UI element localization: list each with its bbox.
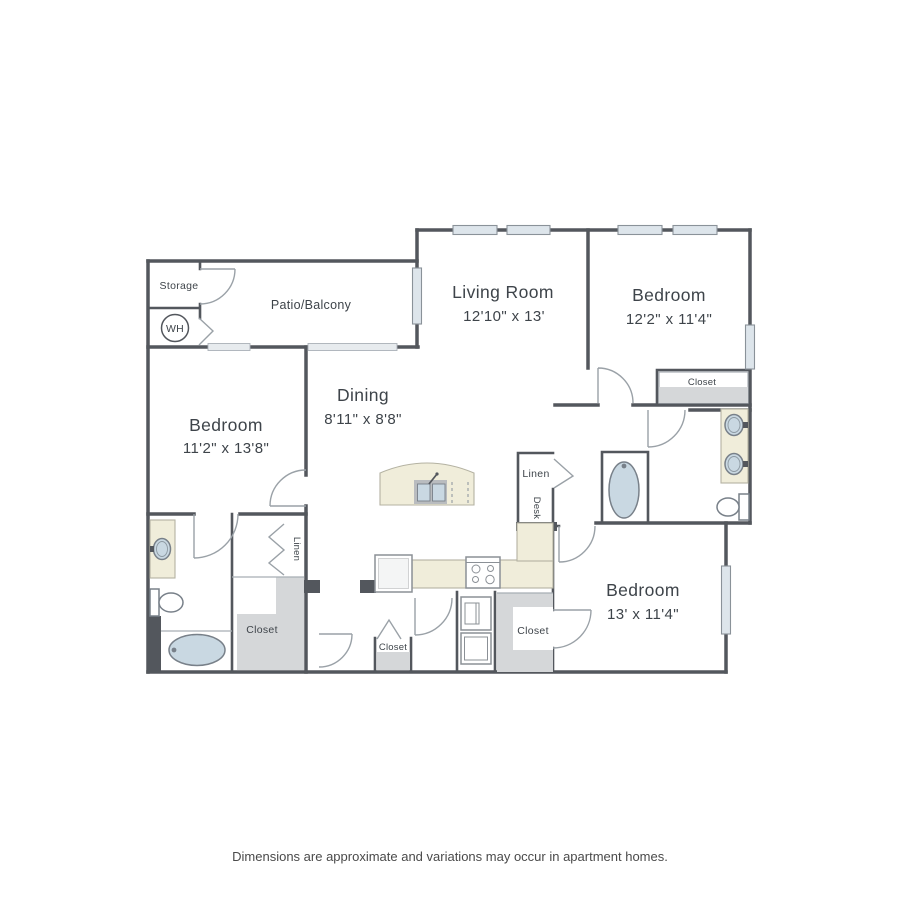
wall-stub <box>148 616 161 672</box>
living-room-label: Living Room <box>452 282 554 302</box>
floor-plan: WH Storage Patio/Balcony Living Room 12'… <box>0 0 900 900</box>
window <box>507 226 550 235</box>
bedroom-left-dims: 11'2" x 13'8" <box>183 440 269 457</box>
bedroom-left-label: Bedroom <box>189 415 263 435</box>
linen-label: Linen <box>291 537 302 561</box>
water-heater-label: WH <box>166 323 184 335</box>
kitchen-counter <box>517 523 553 561</box>
closet-floor <box>659 387 748 403</box>
disclaimer-text: Dimensions are approximate and variation… <box>232 849 668 864</box>
closet-label: Closet <box>517 625 549 637</box>
patio-door-sill <box>308 344 397 351</box>
window <box>673 226 717 235</box>
patio-label: Patio/Balcony <box>271 298 352 312</box>
bathtub <box>609 462 639 518</box>
window <box>413 268 422 324</box>
door-swing <box>648 410 685 447</box>
floor-plan-page: WH Storage Patio/Balcony Living Room 12'… <box>0 0 900 900</box>
window <box>746 325 755 369</box>
door-swing <box>319 634 352 667</box>
closet-floor <box>377 652 410 670</box>
living-room-dims: 12'10" x 13' <box>463 308 545 325</box>
bathroom-master <box>609 409 749 520</box>
door-bifold <box>269 524 284 575</box>
dining-label: Dining <box>337 385 389 405</box>
toilet <box>150 589 183 616</box>
window <box>618 226 662 235</box>
closet-label: Closet <box>246 624 278 636</box>
window <box>722 566 731 634</box>
stove <box>466 557 500 588</box>
door-swing <box>598 368 633 403</box>
linen-label: Linen <box>522 468 549 480</box>
dining-dims: 8'11" x 8'8" <box>324 411 402 428</box>
patio-door-sill <box>208 344 250 351</box>
wall-stub <box>304 580 320 593</box>
bedroom-bottom-right-label: Bedroom <box>606 580 680 600</box>
storage-label: Storage <box>160 280 199 292</box>
bathroom-left <box>150 520 232 666</box>
bedroom-top-right-dims: 12'2" x 11'4" <box>626 311 712 328</box>
refrigerator <box>375 555 412 592</box>
window <box>453 226 497 235</box>
door-angled <box>554 459 573 488</box>
washer-dryer <box>461 597 491 664</box>
door-swing <box>553 610 591 648</box>
door-swing <box>559 526 595 562</box>
faucet-icon <box>743 422 748 428</box>
door-bifold <box>377 620 401 639</box>
door-angled <box>199 318 213 345</box>
faucet-icon <box>150 546 154 552</box>
closet-label: Closet <box>688 377 716 388</box>
door-swing <box>415 598 452 635</box>
desk-label: Desk <box>531 497 542 519</box>
bathtub <box>169 635 225 666</box>
wall-stub <box>360 580 376 593</box>
bedroom-bottom-right-dims: 13' x 11'4" <box>607 606 679 623</box>
bedroom-top-right-label: Bedroom <box>632 285 706 305</box>
faucet-icon <box>743 461 748 467</box>
door-swing <box>270 470 306 506</box>
toilet <box>717 494 749 520</box>
door-swing <box>200 269 235 304</box>
water-heater: WH <box>162 315 189 342</box>
closet-label: Closet <box>379 642 407 653</box>
